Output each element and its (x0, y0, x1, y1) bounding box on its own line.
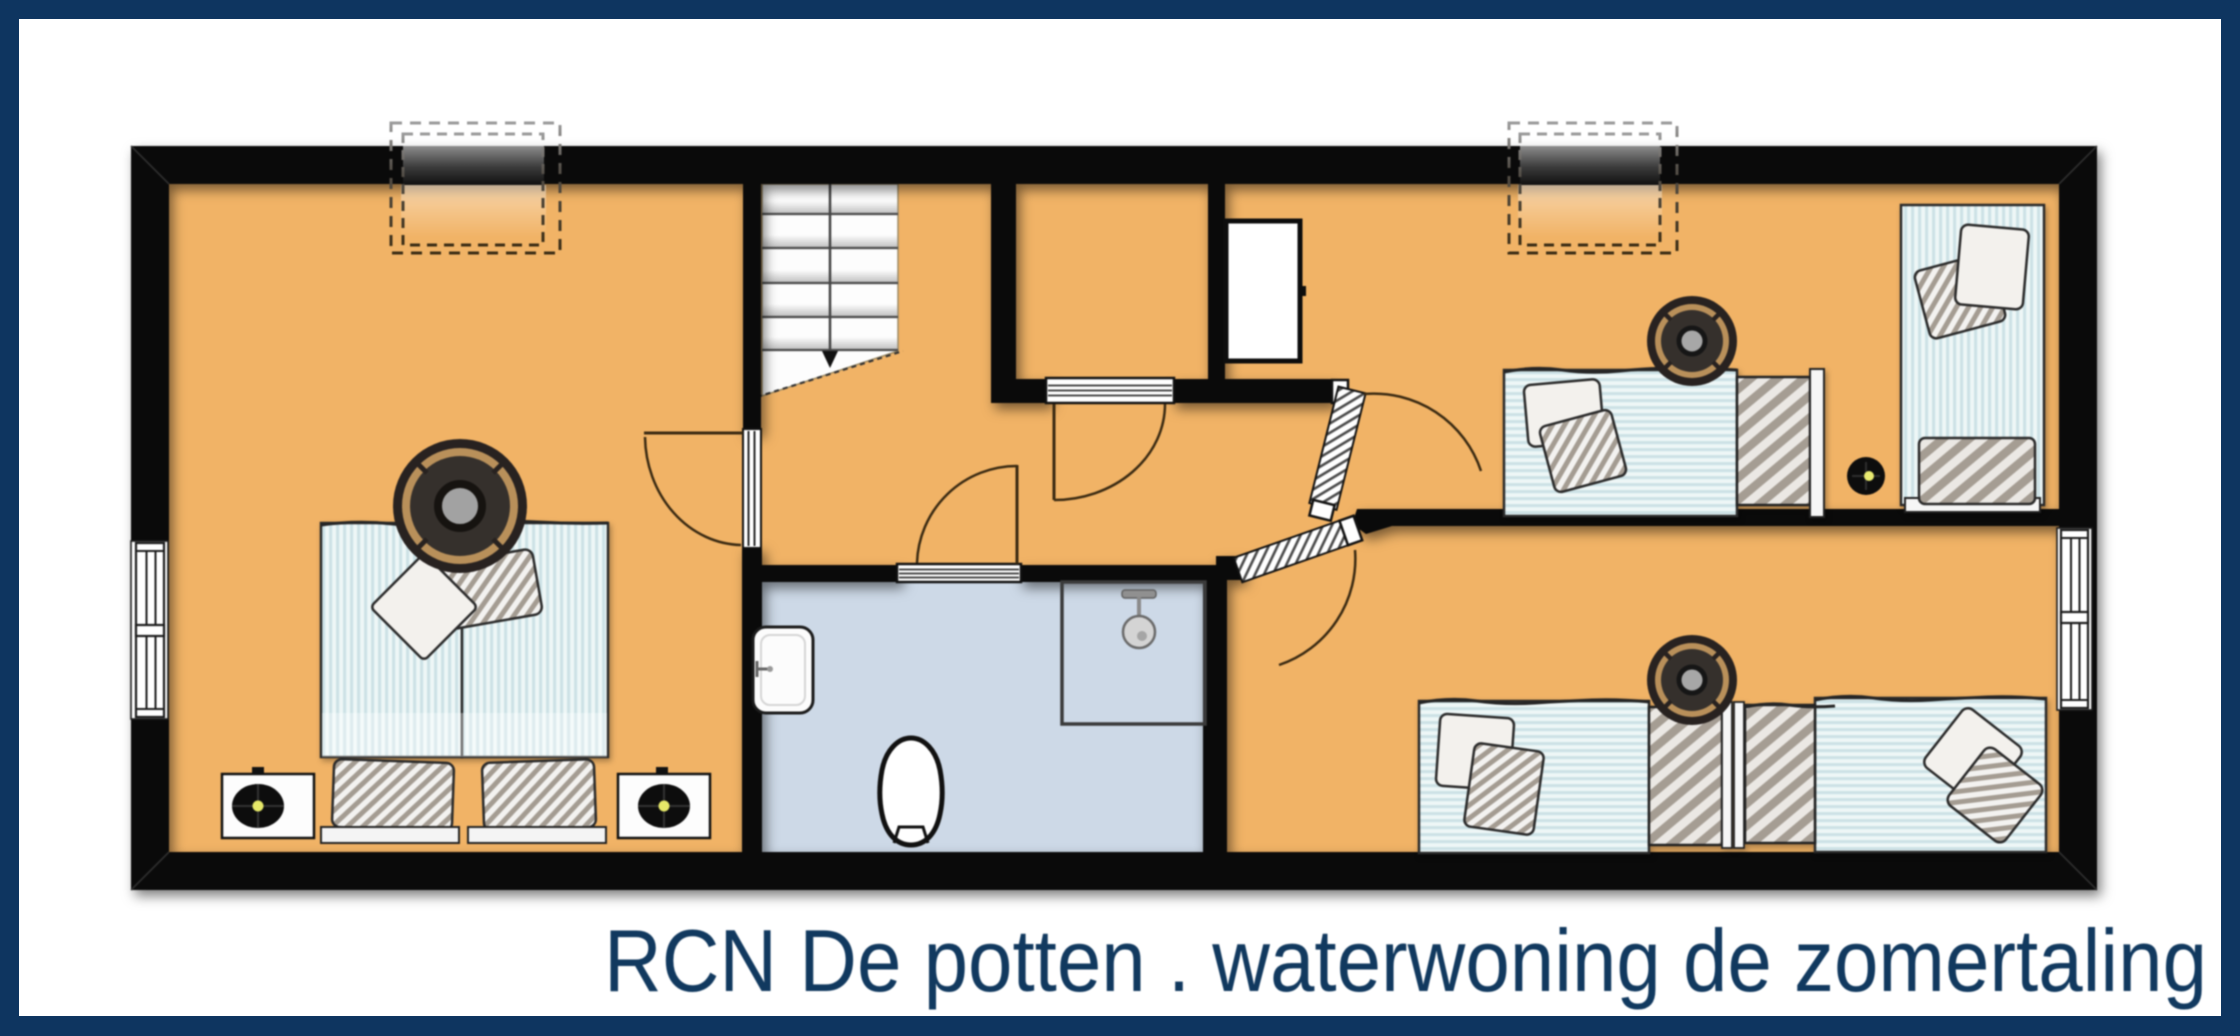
svg-text:RCN De potten . waterwoning de: RCN De potten . waterwoning de zomertali… (604, 911, 2207, 1010)
